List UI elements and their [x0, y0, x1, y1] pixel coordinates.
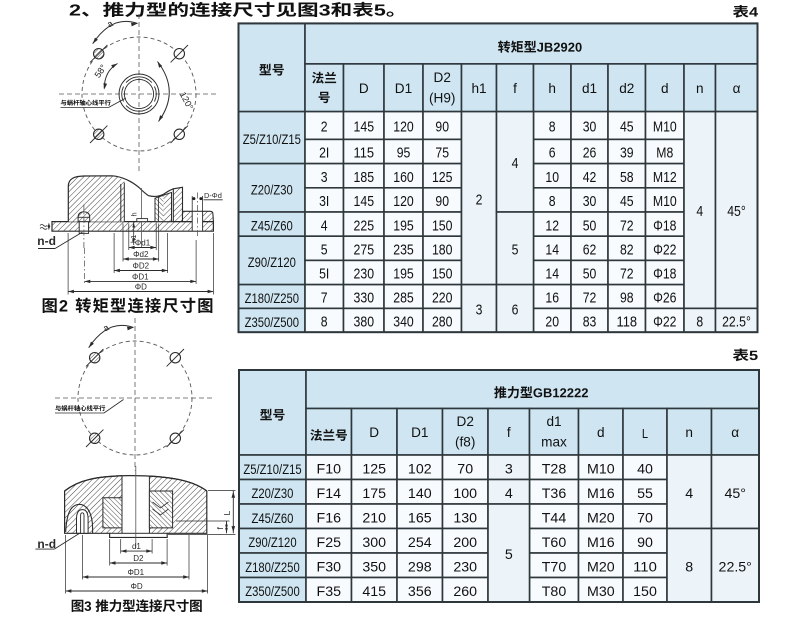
svg-text:275: 275 — [354, 243, 375, 259]
svg-text:195: 195 — [393, 267, 414, 283]
svg-text:98: 98 — [620, 291, 634, 307]
svg-text:M16: M16 — [587, 535, 615, 551]
svg-text:45: 45 — [620, 120, 634, 136]
svg-text:100: 100 — [453, 486, 477, 502]
svg-text:82: 82 — [620, 243, 634, 259]
svg-text:F30: F30 — [317, 560, 342, 576]
svg-text:200: 200 — [453, 535, 477, 551]
svg-text:5: 5 — [512, 243, 519, 259]
svg-text:22.5°: 22.5° — [722, 315, 751, 331]
svg-text:ΦD: ΦD — [131, 582, 143, 591]
svg-text:115: 115 — [354, 146, 375, 162]
svg-text:f: f — [513, 81, 517, 96]
svg-text:356: 356 — [408, 584, 432, 600]
svg-text:58: 58 — [620, 170, 634, 186]
svg-text:225: 225 — [354, 218, 375, 234]
svg-text:230: 230 — [453, 560, 477, 576]
svg-text:d1: d1 — [582, 81, 597, 96]
svg-text:d2: d2 — [619, 81, 634, 96]
svg-text:8: 8 — [696, 315, 703, 331]
svg-text:50: 50 — [583, 267, 597, 283]
svg-text:ΦD1: ΦD1 — [132, 272, 149, 281]
svg-text:Z90/Z120: Z90/Z120 — [248, 255, 296, 270]
svg-text:285: 285 — [393, 291, 414, 307]
svg-text:4: 4 — [505, 486, 513, 502]
svg-text:8: 8 — [549, 194, 556, 210]
svg-text:F14: F14 — [317, 486, 342, 502]
svg-text:4: 4 — [512, 156, 519, 172]
svg-text:D1: D1 — [411, 425, 428, 440]
svg-text:Z180/Z250: Z180/Z250 — [245, 291, 299, 306]
svg-text:39: 39 — [620, 146, 634, 162]
svg-text:M10: M10 — [587, 461, 615, 477]
svg-text:95: 95 — [397, 146, 411, 162]
svg-text:Φd2: Φd2 — [133, 250, 149, 259]
svg-text:d: d — [597, 425, 605, 440]
svg-text:8: 8 — [321, 315, 328, 331]
svg-text:F35: F35 — [317, 584, 342, 600]
svg-text:14: 14 — [545, 267, 559, 283]
svg-text:340: 340 — [393, 315, 414, 331]
svg-text:M10: M10 — [653, 120, 677, 136]
svg-text:8: 8 — [685, 560, 693, 576]
svg-text:3I: 3I — [319, 194, 329, 210]
svg-text:120: 120 — [393, 194, 414, 210]
svg-text:102: 102 — [408, 461, 432, 477]
svg-text:h: h — [548, 81, 556, 96]
svg-text:125: 125 — [362, 461, 386, 477]
svg-text:45°: 45° — [724, 486, 746, 502]
svg-text:72: 72 — [620, 267, 634, 283]
svg-text:26: 26 — [583, 146, 597, 162]
svg-text:165: 165 — [408, 511, 432, 527]
svg-text:M10: M10 — [653, 194, 677, 210]
svg-text:f: f — [507, 425, 511, 440]
svg-text:d: d — [661, 81, 669, 96]
svg-text:175: 175 — [362, 486, 386, 502]
svg-text:Z180/Z250: Z180/Z250 — [245, 560, 299, 575]
svg-text:Φ26: Φ26 — [653, 291, 676, 307]
svg-text:110: 110 — [633, 560, 657, 576]
svg-text:ΦD1: ΦD1 — [127, 568, 144, 577]
svg-text:L: L — [642, 426, 648, 441]
svg-text:3: 3 — [476, 303, 483, 319]
svg-text:120: 120 — [393, 120, 414, 136]
svg-text:D1: D1 — [395, 81, 412, 96]
svg-text:(f8): (f8) — [455, 435, 475, 450]
svg-text:45: 45 — [620, 194, 634, 210]
svg-text:150: 150 — [633, 584, 657, 600]
svg-text:380: 380 — [354, 315, 375, 331]
svg-text:D-Φd: D-Φd — [204, 191, 222, 200]
svg-text:220: 220 — [432, 291, 453, 307]
svg-text:M12: M12 — [653, 170, 677, 186]
svg-text:4: 4 — [696, 204, 703, 220]
svg-text:298: 298 — [408, 560, 432, 576]
svg-text:Φ18: Φ18 — [653, 267, 676, 283]
svg-text:D2: D2 — [133, 554, 144, 563]
svg-text:Z350/Z500: Z350/Z500 — [245, 315, 299, 330]
svg-text:12: 12 — [545, 218, 559, 234]
svg-text:118: 118 — [617, 315, 638, 331]
svg-text:T36: T36 — [542, 486, 567, 502]
svg-text:10: 10 — [545, 170, 559, 186]
svg-text:d1: d1 — [132, 542, 141, 551]
svg-text:ΦD: ΦD — [135, 283, 147, 292]
svg-text:F16: F16 — [317, 511, 342, 527]
svg-text:2: 2 — [321, 120, 328, 136]
svg-text:160: 160 — [393, 170, 414, 186]
svg-text:30: 30 — [583, 120, 597, 136]
svg-text:Z90/Z120: Z90/Z120 — [248, 535, 296, 550]
svg-text:16: 16 — [545, 291, 559, 307]
svg-text:M16: M16 — [587, 486, 615, 502]
svg-text:40: 40 — [637, 461, 653, 477]
svg-text:D: D — [359, 81, 369, 96]
svg-text:5: 5 — [505, 547, 513, 563]
svg-text:F10: F10 — [317, 461, 342, 477]
svg-text:62: 62 — [583, 243, 597, 259]
svg-text:n-d: n-d — [37, 234, 56, 248]
svg-text:ΦD2: ΦD2 — [132, 262, 149, 271]
svg-text:T70: T70 — [542, 560, 567, 576]
svg-text:(H9): (H9) — [429, 91, 455, 106]
svg-text:D2: D2 — [457, 414, 474, 429]
svg-text:Z5/Z10/Z15: Z5/Z10/Z15 — [243, 462, 301, 477]
svg-text:280: 280 — [432, 315, 453, 331]
svg-text:83: 83 — [583, 315, 597, 331]
svg-text:415: 415 — [362, 584, 386, 600]
svg-text:Z20/Z30: Z20/Z30 — [252, 486, 294, 501]
svg-text:T44: T44 — [542, 511, 567, 527]
svg-text:α: α — [731, 425, 739, 440]
svg-text:3: 3 — [505, 461, 513, 477]
svg-text:h1: h1 — [471, 81, 486, 96]
svg-text:42: 42 — [583, 170, 597, 186]
svg-text:Φd1: Φd1 — [135, 239, 151, 248]
svg-text:T80: T80 — [542, 584, 567, 600]
svg-text:150: 150 — [432, 267, 453, 283]
svg-text:M8: M8 — [656, 146, 673, 162]
svg-text:T60: T60 — [542, 535, 567, 551]
svg-text:254: 254 — [408, 535, 432, 551]
svg-text:50: 50 — [583, 218, 597, 234]
svg-text:Φ18: Φ18 — [653, 218, 676, 234]
svg-text:72: 72 — [583, 291, 597, 307]
svg-text:235: 235 — [393, 243, 414, 259]
svg-text:14: 14 — [545, 243, 559, 259]
svg-text:145: 145 — [354, 194, 375, 210]
svg-text:6: 6 — [549, 146, 556, 162]
svg-text:260: 260 — [453, 584, 477, 600]
svg-text:3: 3 — [321, 170, 328, 186]
svg-text:2I: 2I — [319, 146, 329, 162]
svg-text:Z45/Z60: Z45/Z60 — [252, 511, 294, 526]
svg-text:8: 8 — [549, 120, 556, 136]
svg-text:70: 70 — [637, 511, 653, 527]
svg-text:4: 4 — [321, 218, 328, 234]
svg-text:210: 210 — [362, 511, 386, 527]
svg-text:30: 30 — [583, 194, 597, 210]
svg-text:20: 20 — [545, 315, 559, 331]
svg-text:Z5/Z10/Z15: Z5/Z10/Z15 — [243, 132, 301, 147]
svg-text:Φ22: Φ22 — [653, 243, 676, 259]
svg-text:d1: d1 — [546, 414, 561, 429]
svg-text:90: 90 — [637, 535, 653, 551]
svg-text:70: 70 — [457, 461, 473, 477]
svg-text:72: 72 — [620, 218, 634, 234]
svg-text:300: 300 — [362, 535, 386, 551]
svg-text:n: n — [696, 81, 704, 96]
svg-text:Z45/Z60: Z45/Z60 — [251, 219, 293, 234]
svg-text:330: 330 — [354, 291, 375, 307]
svg-text:22.5°: 22.5° — [719, 560, 752, 576]
svg-text:150: 150 — [432, 218, 453, 234]
svg-text:6: 6 — [512, 303, 519, 319]
svg-text:350: 350 — [362, 560, 386, 576]
svg-text:F25: F25 — [317, 535, 342, 551]
svg-text:140: 140 — [408, 486, 432, 502]
svg-text:M20: M20 — [587, 511, 615, 527]
svg-text:195: 195 — [393, 218, 414, 234]
svg-text:Z350/Z500: Z350/Z500 — [245, 584, 299, 599]
svg-text:D2: D2 — [434, 70, 451, 85]
svg-text:h: h — [129, 212, 138, 216]
svg-text:180: 180 — [432, 243, 453, 259]
svg-text:5: 5 — [321, 243, 328, 259]
svg-text:90: 90 — [435, 194, 449, 210]
svg-text:α: α — [733, 81, 741, 96]
svg-text:90: 90 — [435, 120, 449, 136]
svg-text:7: 7 — [321, 291, 328, 307]
svg-text:130: 130 — [453, 511, 477, 527]
svg-text:5I: 5I — [319, 267, 329, 283]
svg-text:T28: T28 — [542, 461, 567, 477]
svg-text:75: 75 — [435, 146, 449, 162]
svg-text:230: 230 — [354, 267, 375, 283]
svg-text:55: 55 — [637, 486, 653, 502]
svg-text:185: 185 — [354, 170, 375, 186]
svg-text:2: 2 — [476, 192, 483, 208]
svg-text:M20: M20 — [587, 560, 615, 576]
svg-text:D: D — [369, 425, 379, 440]
svg-text:45°: 45° — [727, 204, 746, 220]
svg-text:max: max — [541, 435, 567, 450]
svg-text:145: 145 — [354, 120, 375, 136]
svg-text:4: 4 — [685, 486, 693, 502]
svg-text:Φ22: Φ22 — [653, 315, 676, 331]
svg-text:L: L — [222, 511, 232, 516]
svg-text:Z20/Z30: Z20/Z30 — [251, 182, 293, 197]
svg-text:n: n — [685, 425, 693, 440]
svg-text:125: 125 — [432, 170, 453, 186]
svg-text:M30: M30 — [587, 584, 615, 600]
